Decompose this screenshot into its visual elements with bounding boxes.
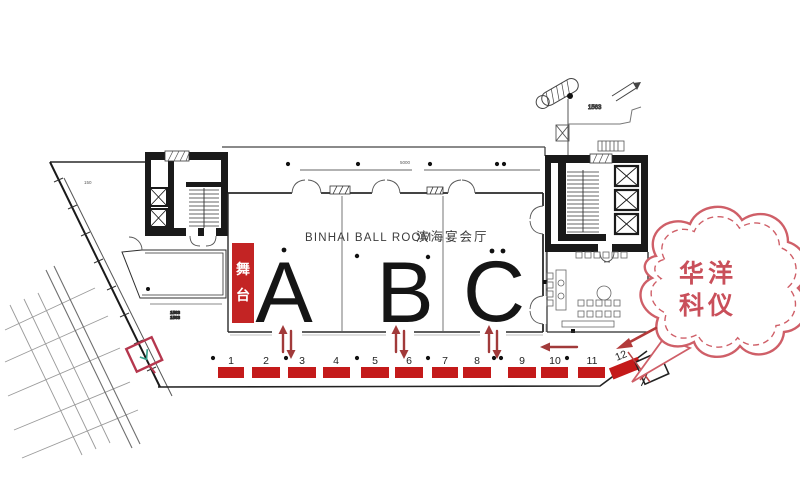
booth-2-label: 2 [263,355,269,367]
room-ref-label-b: 1563 [170,315,181,320]
storage-room: 1563 1563 [122,237,226,320]
terrace-grid [5,266,140,458]
stage-block: 舞 台 [232,243,254,323]
section-letter-c: C [463,244,525,340]
booth-8 [463,367,491,378]
booth-6 [395,367,423,378]
dim-label-top: 5000 [400,160,411,165]
booth-9-label: 9 [519,355,525,367]
door-swing-icon [530,206,543,324]
staircase-icon [186,182,221,228]
booth-3-label: 3 [299,355,305,367]
floor-plan-drawing: 1563 1563 150 [0,0,800,500]
booth-7 [432,367,458,378]
stage-label-char2: 台 [236,287,250,303]
elevator-shaft-icon [615,166,638,234]
booth-10 [541,367,568,378]
booth-4 [323,367,350,378]
booth-11-label: 11 [587,355,598,367]
right-elevator-core [545,154,648,262]
site-details-topright: 1563 [534,76,641,155]
lounge-room [547,252,648,332]
stage-label-char1: 舞 [236,261,250,277]
booth-7-label: 7 [442,355,448,367]
floor-plan: 1563 1563 150 [0,0,800,500]
diagonal-ref-label: 150 [84,180,92,185]
booth-2 [252,367,280,378]
vestibule-hatch [165,151,189,161]
booth-10-label: 10 [549,355,561,367]
left-elevator-core [145,151,228,246]
booth-11 [578,367,605,378]
booth-1-label: 1 [228,355,234,367]
ref-label-upper-right: 1563 [588,105,602,111]
door-swing-icon [292,180,475,193]
booth-9 [508,367,536,378]
elevator-shaft-icon [150,188,167,227]
bench [562,321,614,327]
booth-4-label: 4 [333,355,339,367]
ramp-icon [534,76,581,111]
booth-1 [218,367,244,378]
booth-5 [361,367,389,378]
slope-arrow-icon [633,82,641,90]
stamp-text-line1: 华洋 [679,259,737,288]
booth-8-label: 8 [474,355,480,367]
booth-3 [288,367,316,378]
door-swing-icon [190,236,216,246]
lounge-furniture [547,252,627,327]
staircase-icon [567,170,599,232]
flow-arrow-left [540,343,577,352]
stamp-pointer-arrow [616,328,656,349]
booth-5-label: 5 [372,355,378,367]
stamp-text-line2: 科仪 [679,292,737,320]
utility-box-icon [556,125,569,141]
section-letter-a: A [255,245,313,341]
door-swing-icon [129,237,142,250]
section-letter-b: B [376,245,433,341]
small-stair-icon [598,141,624,151]
booth-6-label: 6 [406,355,412,367]
ballroom-title-zh: 滨海宴会厅 [416,229,489,244]
stamp-cloud: 华洋 科仪 [632,207,800,382]
vestibule-hatch [590,154,612,163]
ballroom-title-en: BINHAI BALL ROOM [305,232,432,244]
booth-row: 1 2 3 4 5 6 7 8 9 10 11 12 [218,345,642,380]
